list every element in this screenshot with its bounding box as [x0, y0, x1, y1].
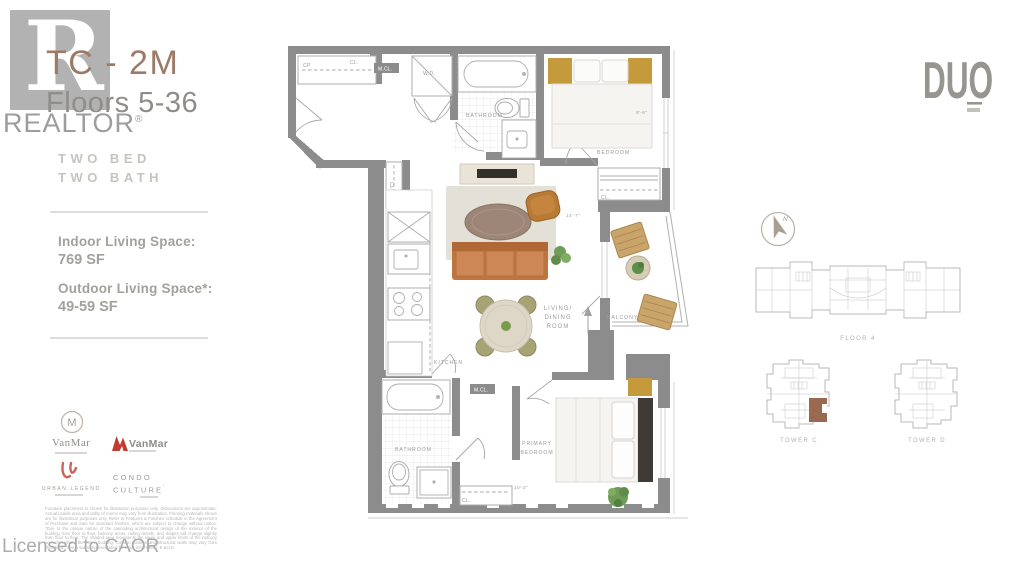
kitchen-fixtures — [386, 190, 432, 376]
room-label-primary-2: BEDROOM — [520, 450, 553, 456]
closet-cp-label: CP — [303, 63, 311, 69]
dining-set — [476, 296, 536, 356]
room-label-bathroom-bottom: BATHROOM — [395, 447, 432, 453]
closet-cl-label-kitchen: CL. — [388, 182, 394, 191]
vanmar-m: M — [67, 417, 76, 429]
vanmar2-tagline-bar — [129, 450, 156, 452]
dim-primary: 10'-2" — [514, 485, 528, 491]
toilet2-bowl — [389, 462, 409, 487]
bed-duvet — [552, 84, 652, 148]
keyplan-tower-c-label: TOWER C — [780, 438, 818, 444]
primary-pillow — [612, 441, 634, 478]
entry-closet: CP CL. — [298, 56, 376, 84]
primary-headboard — [638, 398, 653, 482]
vanmar-monogram-icon: M — [60, 410, 84, 434]
stove — [388, 288, 430, 320]
condo-reg: ' — [163, 485, 166, 491]
indoor-space-label: Indoor Living Space: — [58, 234, 196, 249]
vanmar-logo-text: VanMar — [52, 437, 90, 449]
compass-north-label: N — [783, 216, 788, 223]
room-label-living-3: ROOM — [547, 324, 570, 330]
keyplan-tower-c: TOWER C — [752, 352, 842, 448]
bedroom-bed — [548, 58, 652, 148]
compass-icon: N — [756, 206, 800, 252]
bedroom-closet: CL. — [598, 168, 660, 201]
spec-two-bath: TWO BATH — [58, 168, 163, 187]
room-label-primary-1: PRIMARY — [522, 441, 552, 447]
mcl-closet-top: M.CL. — [374, 63, 399, 73]
urban-legend-icon — [58, 461, 80, 483]
dim-bedroom: 8'-6" — [636, 110, 647, 116]
keyplan-floor4-label: FLOOR 4 — [840, 336, 875, 342]
licensed-watermark: Licensed to CAOR — [2, 536, 159, 558]
vanmar-red-icon — [112, 436, 128, 451]
condo-line1: CONDO — [113, 472, 166, 483]
duo-underline — [967, 102, 982, 105]
washer-dryer-label: W.D. — [423, 71, 435, 77]
room-label-living-2: DINING — [545, 315, 572, 321]
primary-gold-bench — [628, 378, 652, 396]
tv — [477, 169, 517, 178]
divider-bottom — [50, 337, 208, 339]
bed-gold-right — [628, 58, 652, 84]
dim-living: 14'-7" — [566, 213, 580, 219]
toilet-tank — [520, 99, 529, 117]
vanmar2-logo-text: VanMar — [129, 438, 168, 450]
sofa — [452, 242, 548, 280]
duo-logo-text: DUO — [923, 52, 993, 110]
balcony-chair — [610, 222, 649, 259]
washer-dryer-closet: W.D. — [412, 56, 452, 122]
floors-subtitle: Floors 5-36 — [46, 87, 198, 120]
primary-closet: CL. — [460, 486, 512, 505]
keyplan-tower-d-label: TOWER D — [908, 438, 946, 444]
unit-code-title: TC - 2M — [46, 44, 179, 83]
keyplan-floor4: FLOOR 4 — [750, 254, 966, 346]
mcl-label-bottom: M.CL. — [474, 388, 488, 394]
outdoor-space-label: Outdoor Living Space*: — [58, 281, 212, 296]
condo-tagline-bar — [140, 496, 158, 498]
divider-top — [50, 211, 208, 213]
tub-drain — [522, 72, 526, 76]
toilet2-tank — [390, 486, 409, 494]
room-label-living-1: LIVING/ — [544, 306, 572, 312]
floorplan-drawing: CP CL. W.D. M.CL. CL. CL. — [278, 40, 698, 525]
closet-cl-label-bedroom: CL. — [601, 195, 610, 201]
urban-legend-text: URBAN LEGEND — [42, 486, 101, 492]
mcl-closet-bottom: M.CL. — [470, 384, 495, 394]
duo-tagline-bar — [967, 108, 980, 112]
room-label-bathroom-top: BATHROOM — [466, 113, 503, 119]
bed-bath-spec: TWO BED TWO BATH — [58, 149, 163, 187]
closet-cl-label-entry: CL. — [350, 60, 359, 66]
condo-culture-text: CONDO CULTURE' — [113, 472, 166, 496]
room-label-balcony: BALCONY — [607, 315, 638, 321]
bed-pillow — [602, 60, 628, 82]
balcony-chair — [637, 294, 677, 330]
mcl-label-top: M.CL. — [378, 67, 392, 73]
primary-pillow — [612, 402, 634, 439]
keyplan-floor4-cores — [796, 272, 920, 281]
bed-gold-left — [548, 58, 572, 84]
duo-logo: DUO — [922, 48, 994, 116]
closet-cl-label-primary: CL. — [462, 498, 471, 504]
outdoor-space-value: 49-59 SF — [58, 299, 118, 315]
spec-two-bed: TWO BED — [58, 149, 163, 168]
room-label-bedroom: BEDROOM — [597, 150, 630, 156]
keyplan-tower-d: TOWER D — [880, 352, 970, 448]
vanmar-tagline-bar — [55, 452, 87, 454]
bed-pillow — [574, 60, 600, 82]
condo-line2: CULTURE' — [113, 483, 166, 496]
room-label-kitchen: KITCHEN — [434, 360, 463, 366]
urban-legend-tagline-bar — [55, 494, 83, 496]
balcony-furniture — [610, 222, 677, 330]
floorplan-sheet: R REALTOR® TC - 2M Floors 5-36 TWO BED T… — [0, 0, 1024, 565]
indoor-space-value: 769 SF — [58, 252, 105, 268]
primary-bed — [556, 378, 653, 482]
